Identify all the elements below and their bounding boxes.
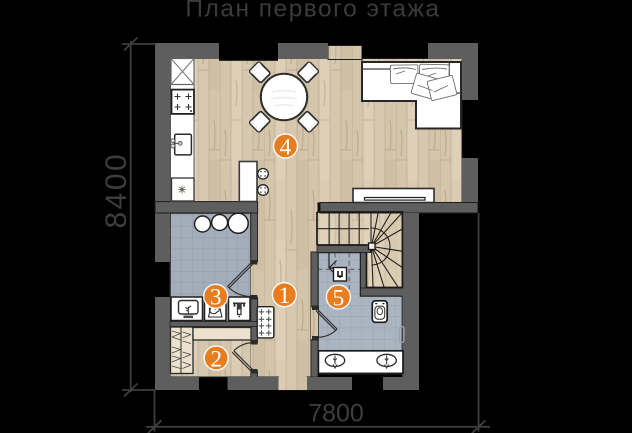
svg-text:План первого этажа: План первого этажа: [185, 0, 440, 22]
svg-text:2: 2: [210, 346, 222, 372]
svg-text:3: 3: [210, 285, 222, 311]
svg-text:1: 1: [279, 283, 291, 309]
svg-text:7800: 7800: [308, 400, 364, 428]
svg-text:8400: 8400: [100, 152, 133, 229]
svg-text:5: 5: [333, 285, 345, 311]
svg-text:4: 4: [280, 134, 292, 160]
